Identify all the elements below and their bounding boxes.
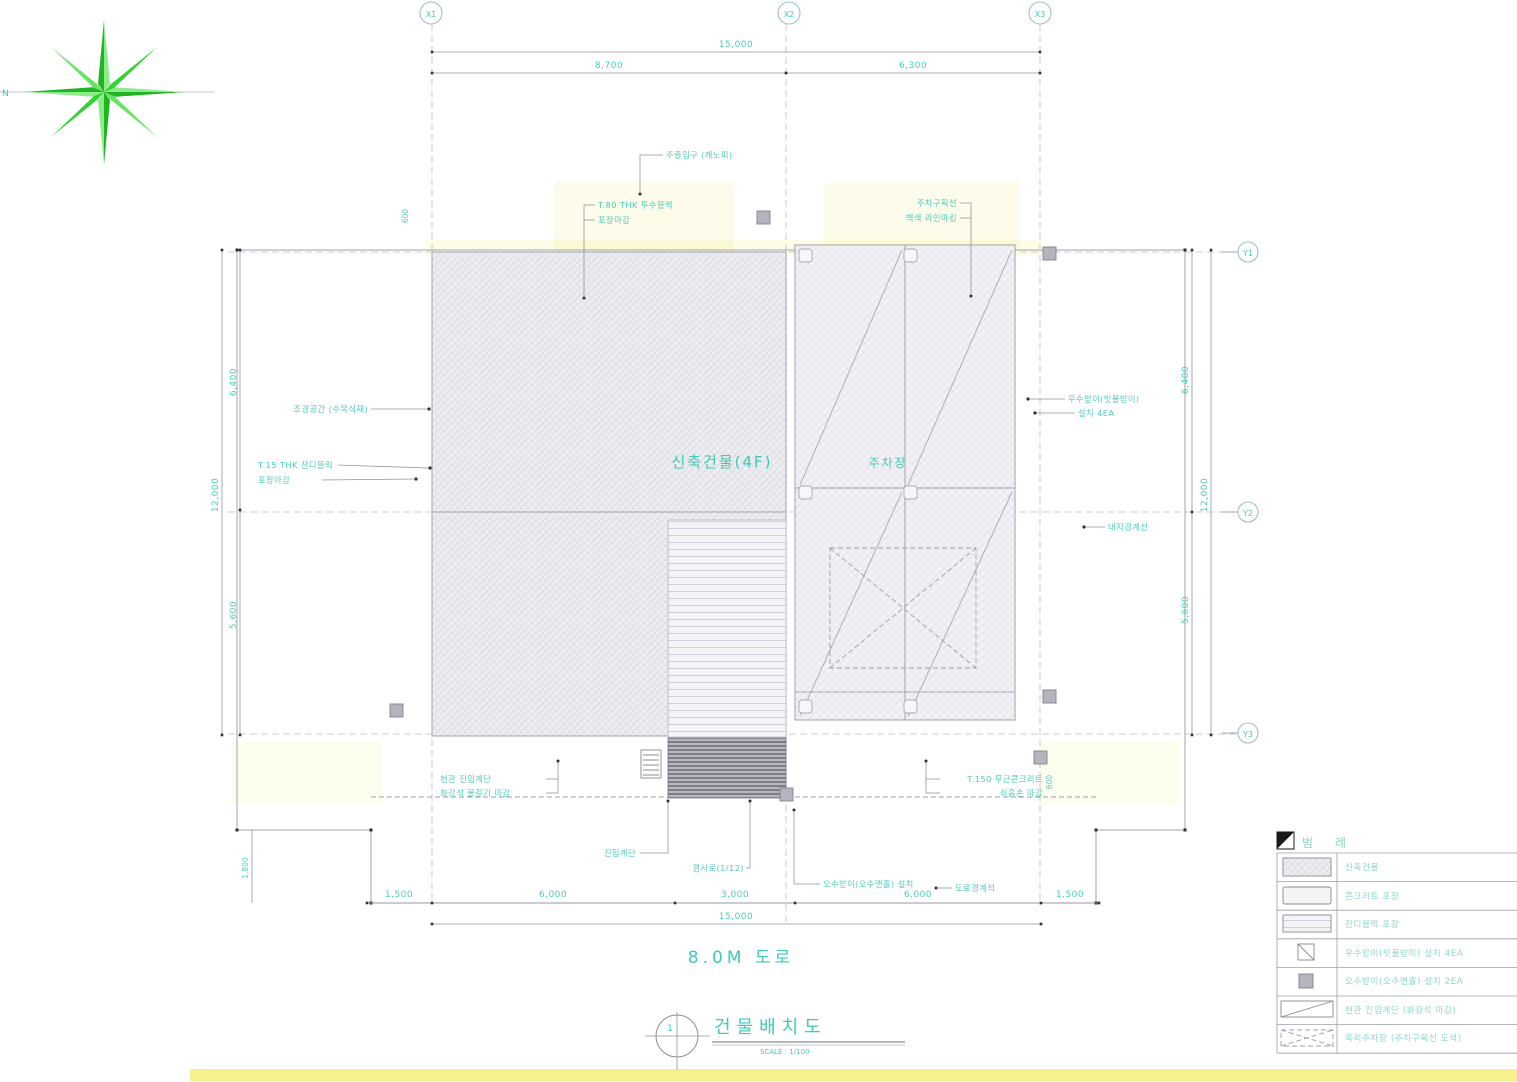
svg-text:포장마감: 포장마감 [258,475,290,485]
legend-table: 범 례 [1277,832,1517,1053]
site-plan-sheet: N X1 X2 X3 Y1 Y2 Y3 [0,0,1517,1082]
sheet-number: 1 [667,1024,673,1034]
svg-text:포장마감: 포장마감 [598,215,630,225]
dim-top-a: 8,700 [595,61,623,71]
svg-text:조경공간 (수목식재): 조경공간 (수목식재) [293,404,368,414]
road-label: 8.0M 도로 [688,948,794,968]
drawing-title-block: 1 건물배치도 SCALE : 1/100 [645,1012,905,1070]
svg-text:경사로(1/12): 경사로(1/12) [692,863,744,873]
dim-left-total: 12,000 [211,478,221,513]
dim-small-2: 600 [1045,775,1054,790]
dim-top-total: 15,000 [719,40,754,50]
callout-rain-basin: 우수받이(빗물받이) 설치 4EA [1026,394,1139,418]
callout-curb: 도로경계석 [935,883,996,893]
trench-grate [641,750,661,778]
svg-text:주출입구 (캐노피): 주출입구 (캐노피) [666,150,733,160]
svg-text:주차구획선: 주차구획선 [917,198,957,208]
new-building: 신축건물(4F) [432,252,786,798]
callout-stair-ramp: 진입계단 경사로(1/12) [604,800,752,874]
legend-labels: 신축건물 콘크리트 포장 잔디블럭 포장 우수받이(빗물받이) 설치 4EA 오… [1345,862,1463,1044]
dim-side-small: 1,800 [241,857,250,879]
svg-text:대지경계선: 대지경계선 [1108,522,1148,532]
svg-text:진입계단: 진입계단 [604,848,636,858]
legend-row-label: 오수받이(오수맨홀) 설치 2EA [1345,975,1463,987]
road-title: 8.0M 도로 [688,948,794,968]
dim-top-b: 6,300 [899,61,927,71]
dim-bottom-3: 3,000 [721,890,749,900]
dim-small-1: 600 [401,209,410,224]
svg-text:쇠흙손 마감: 쇠흙손 마감 [1000,788,1043,798]
svg-text:화강석 물갈기 마감: 화강석 물갈기 마감 [440,788,510,798]
dim-right-total: 12,000 [1200,478,1210,513]
north-compass-icon: N [0,20,214,165]
svg-text:오수받이(오수맨홀) 설치: 오수받이(오수맨홀) 설치 [823,879,914,889]
entry-stairs [668,738,786,798]
dim-bottom-4: 6,000 [904,890,932,900]
grid-label-x2: X2 [784,10,795,19]
grid-label-y1: Y1 [1242,249,1253,258]
deck-stripe-area [668,520,786,737]
dim-bottom-total: 15,000 [719,912,754,922]
legend-row-label: 현관 진입계단 (화강석 마감) [1345,1004,1456,1016]
drawing-title: 건물배치도 [714,1017,827,1038]
dim-bottom-1: 1,500 [385,890,413,900]
bottom-highlight-strip [190,1069,1517,1081]
grid-label-y3: Y3 [1242,730,1253,739]
callout-entry-stair: 현관 진입계단 화강석 물갈기 마감 [440,760,560,799]
dim-right-b: 5,600 [1181,596,1191,624]
dim-right-a: 6,400 [1181,366,1191,394]
dim-bottom-5: 1,500 [1056,890,1084,900]
legend-row-label: 신축건물 [1345,862,1379,873]
legend-row-label: 콘크리트 포장 [1345,891,1399,902]
svg-text:T.150 무근콘크리트: T.150 무근콘크리트 [966,774,1043,784]
svg-text:T.80 THK 투수블럭: T.80 THK 투수블럭 [597,200,673,210]
dim-left-a: 6,400 [229,368,239,396]
legend-header: 범 례 [1277,832,1355,850]
svg-text:T.15 THK 잔디블럭: T.15 THK 잔디블럭 [257,460,333,470]
grid-label-x1: X1 [426,10,437,19]
grid-label-x3: X3 [1035,10,1046,19]
legend-row-label: 잔디블럭 포장 [1345,918,1399,930]
svg-text:설치 4EA: 설치 4EA [1078,408,1115,418]
grid-label-y2: Y2 [1242,509,1253,518]
parking-area: 주차장 [795,245,1015,720]
svg-text:현관 진입계단: 현관 진입계단 [440,774,491,784]
callout-sewer-basin: 오수받이(오수맨홀) 설치 [793,809,914,890]
svg-text:우수받이(빗물받이): 우수받이(빗물받이) [1068,394,1140,404]
site-plan-drawing: N X1 X2 X3 Y1 Y2 Y3 [0,0,1517,1082]
legend-header-label: 범 례 [1302,836,1355,850]
callout-grass-block: T.15 THK 잔디블럭 포장마감 [257,460,432,485]
parking-label: 주차장 [868,456,907,470]
svg-text:도로경계석: 도로경계석 [955,883,995,893]
legend-row-label: 옥외주차장 (주차구획선 도색) [1345,1032,1462,1044]
callout-landscape: 조경공간 (수목식재) [293,404,430,414]
callout-concrete: T.150 무근콘크리트 쇠흙손 마감 [925,760,1044,799]
drawing-scale: SCALE : 1/100 [760,1048,809,1056]
building-label: 신축건물(4F) [671,453,772,471]
compass-north-label: N [2,89,9,99]
legend-row-label: 우수받이(빗물받이) 설치 4EA [1345,948,1463,959]
dim-bottom-2: 6,000 [539,890,567,900]
legend-swatches [1281,858,1333,1046]
dim-left-b: 5,600 [229,601,239,629]
svg-text:백색 라인마킹: 백색 라인마킹 [906,213,957,223]
callout-site-line: 대지경계선 [1082,522,1148,532]
